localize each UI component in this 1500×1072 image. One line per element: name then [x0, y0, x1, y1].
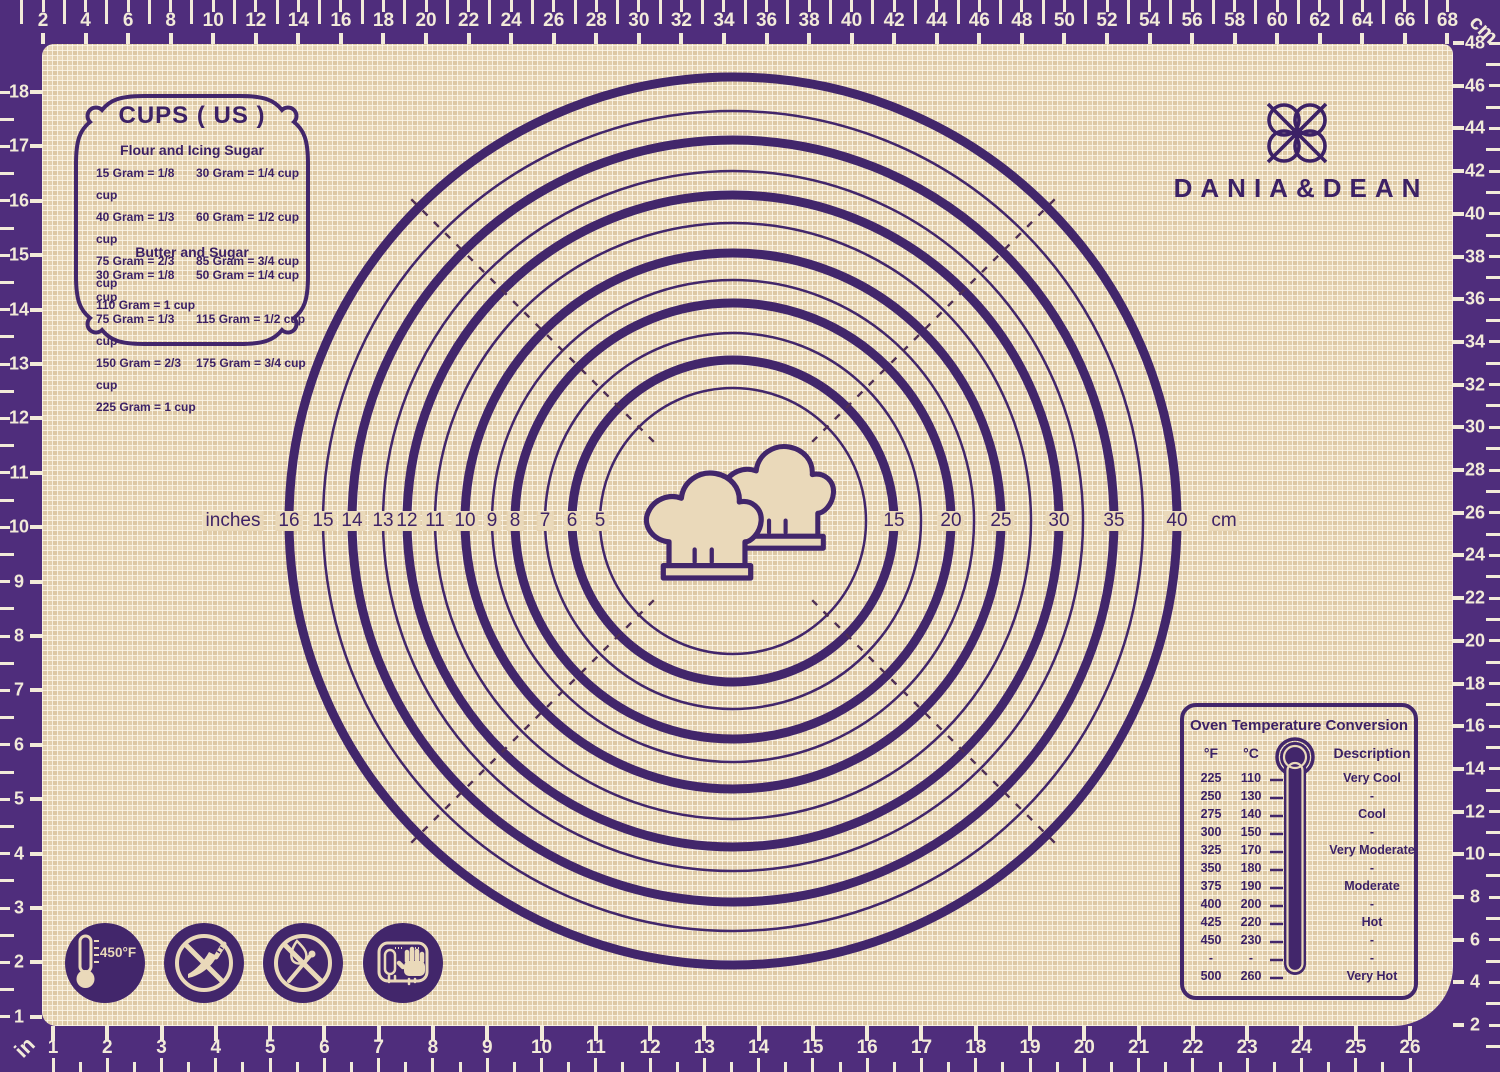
oven-f-value: 500 — [1191, 969, 1231, 983]
oven-f-value: 325 — [1191, 843, 1231, 857]
oven-f-value: 400 — [1191, 897, 1231, 911]
circle-label-cm: 15 — [880, 511, 907, 531]
cups-row-right: 115 Gram = 1/2 cup — [196, 308, 306, 352]
cups-row-right — [196, 396, 306, 418]
circle-unit-label-inches: inches — [203, 511, 264, 531]
oven-c-value: - — [1231, 951, 1271, 965]
oven-table-row: 425220Hot — [1184, 915, 1414, 933]
circle-label-inches: 5 — [592, 511, 609, 531]
no-knife-icon — [164, 923, 244, 1003]
oven-c-value: 170 — [1231, 843, 1271, 857]
oven-f-value: 300 — [1191, 825, 1231, 839]
oven-f-value: 275 — [1191, 807, 1231, 821]
diagonal-dash-guide — [812, 194, 1059, 441]
oven-c-value: 220 — [1231, 915, 1271, 929]
oven-f-value: 425 — [1191, 915, 1231, 929]
oven-f-value: 225 — [1191, 771, 1231, 785]
oven-desc-value: - — [1324, 789, 1420, 803]
circle-label-cm: 25 — [987, 511, 1014, 531]
oven-c-value: 150 — [1231, 825, 1271, 839]
circle-label-inches: 12 — [393, 511, 420, 531]
oven-c-value: 130 — [1231, 789, 1271, 803]
oven-temperature-box: Oven Temperature Conversion °F °C Descri… — [1180, 703, 1418, 1000]
no-flame-icon — [263, 923, 343, 1003]
cups-row-left: 150 Gram = 2/3 cup — [96, 352, 196, 396]
circle-label-inches: 7 — [537, 511, 554, 531]
oven-table-row: 275140Cool — [1184, 807, 1414, 825]
oven-table-row: 375190Moderate — [1184, 879, 1414, 897]
cups-row-left: 30 Gram = 1/8 cup — [96, 264, 196, 308]
cups-row-right: 30 Gram = 1/4 cup — [196, 162, 306, 206]
hand-wash-icon — [363, 923, 443, 1003]
oven-c-value: 200 — [1231, 897, 1271, 911]
circle-label-cm: 30 — [1045, 511, 1072, 531]
cups-section-heading: Flour and Icing Sugar — [66, 142, 318, 158]
oven-table-row: 350180- — [1184, 861, 1414, 879]
cups-row-left: 15 Gram = 1/8 cup — [96, 162, 196, 206]
diagonal-dash-guide — [406, 600, 653, 847]
oven-table-row: --- — [1184, 951, 1414, 969]
oven-c-value: 260 — [1231, 969, 1271, 983]
circle-label-inches: 11 — [422, 511, 448, 531]
oven-c-value: 190 — [1231, 879, 1271, 893]
oven-desc-value: - — [1324, 825, 1420, 839]
oven-f-value: - — [1191, 951, 1231, 965]
circle-label-cm: 35 — [1100, 511, 1127, 531]
circle-unit-label-cm: cm — [1208, 511, 1239, 531]
knot-flower-icon — [1130, 95, 1464, 173]
oven-desc-value: Very Hot — [1324, 969, 1420, 983]
cups-section-rows: 30 Gram = 1/8 cup50 Gram = 1/4 cup75 Gra… — [96, 264, 306, 418]
cups-row-left: 75 Gram = 1/3 cup — [96, 308, 196, 352]
circle-label-cm: 20 — [937, 511, 964, 531]
baking-mat-product-image: inchescm1640151435131230111025982076155 … — [0, 0, 1500, 1072]
cups-row-right: 50 Gram = 1/4 cup — [196, 264, 306, 308]
oven-desc-value: Hot — [1324, 915, 1420, 929]
oven-f-value: 250 — [1191, 789, 1231, 803]
circle-label-inches: 14 — [338, 511, 365, 531]
oven-f-value: 375 — [1191, 879, 1231, 893]
circle-label-inches: 6 — [564, 511, 581, 531]
oven-table-row: 400200- — [1184, 897, 1414, 915]
oven-table-row: 500260Very Hot — [1184, 969, 1414, 987]
circle-label-inches: 10 — [451, 511, 478, 531]
oven-table-row: 325170Very Moderate — [1184, 843, 1414, 861]
circle-label-inches: 16 — [275, 511, 302, 531]
oven-f-value: 350 — [1191, 861, 1231, 875]
circle-label-inches: 9 — [484, 511, 501, 531]
oven-c-value: 230 — [1231, 933, 1271, 947]
oven-desc-value: Very Cool — [1324, 771, 1420, 785]
diagonal-dash-guide — [406, 194, 653, 441]
oven-desc-value: - — [1324, 897, 1420, 911]
oven-table-row: 225110Very Cool — [1184, 771, 1414, 789]
chef-hats-icon — [646, 447, 833, 578]
oven-f-value: 450 — [1191, 933, 1231, 947]
oven-desc-value: Moderate — [1324, 879, 1420, 893]
oven-table-row: 450230- — [1184, 933, 1414, 951]
oven-table-row: 250130- — [1184, 789, 1414, 807]
oven-desc-value: - — [1324, 933, 1420, 947]
cups-conversion-box: CUPS ( US ) Flour and Icing Sugar15 Gram… — [66, 86, 318, 354]
cups-box-title: CUPS ( US ) — [66, 102, 318, 130]
brand-area: DANIA&DEAN — [1130, 95, 1464, 178]
oven-c-value: 180 — [1231, 861, 1271, 875]
oven-c-value: 110 — [1231, 771, 1271, 785]
cups-row-right: 175 Gram = 3/4 cup — [196, 352, 306, 396]
circle-label-inches: 8 — [507, 511, 524, 531]
oven-c-value: 140 — [1231, 807, 1271, 821]
max-temp-label: 450°F — [100, 945, 136, 960]
max-temperature-icon: 450°F — [65, 923, 145, 1003]
oven-table-row: 300150- — [1184, 825, 1414, 843]
oven-desc-value: Cool — [1324, 807, 1420, 821]
circle-label-inches: 15 — [309, 511, 336, 531]
cups-row-left: 225 Gram = 1 cup — [96, 396, 196, 418]
circle-label-cm: 40 — [1163, 511, 1190, 531]
oven-desc-value: Very Moderate — [1324, 843, 1420, 857]
oven-desc-value: - — [1324, 861, 1420, 875]
oven-desc-value: - — [1324, 951, 1420, 965]
cups-section-heading: Butter and Sugar — [66, 244, 318, 260]
brand-name: DANIA&DEAN — [1130, 173, 1464, 204]
